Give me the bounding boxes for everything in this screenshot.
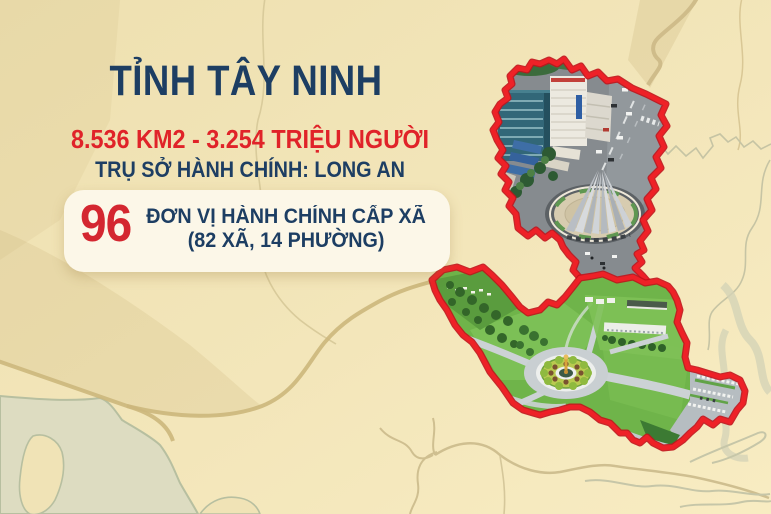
province-title: TỈNH TÂY NINH — [59, 58, 433, 104]
admin-units-number: 96 — [80, 200, 131, 249]
admin-units-label: ĐƠN VỊ HÀNH CHÍNH CẤP XÃ — [145, 205, 427, 229]
admin-units-sublabel: (82 XÃ, 14 PHƯỜNG) — [145, 229, 427, 253]
admin-units-card: 96 ĐƠN VỊ HÀNH CHÍNH CẤP XÃ (82 XÃ, 14 P… — [64, 190, 450, 272]
area-population-line: 8.536 KM2 - 3.254 TRIỆU NGƯỜI — [48, 124, 451, 155]
admin-hq-line: TRỤ SỞ HÀNH CHÍNH: LONG AN — [48, 157, 451, 183]
admin-units-label-block: ĐƠN VỊ HÀNH CHÍNH CẤP XÃ (82 XÃ, 14 PHƯỜ… — [145, 205, 427, 252]
infographic-canvas: TỈNH TÂY NINH 8.536 KM2 - 3.254 TRIỆU NG… — [0, 0, 771, 514]
